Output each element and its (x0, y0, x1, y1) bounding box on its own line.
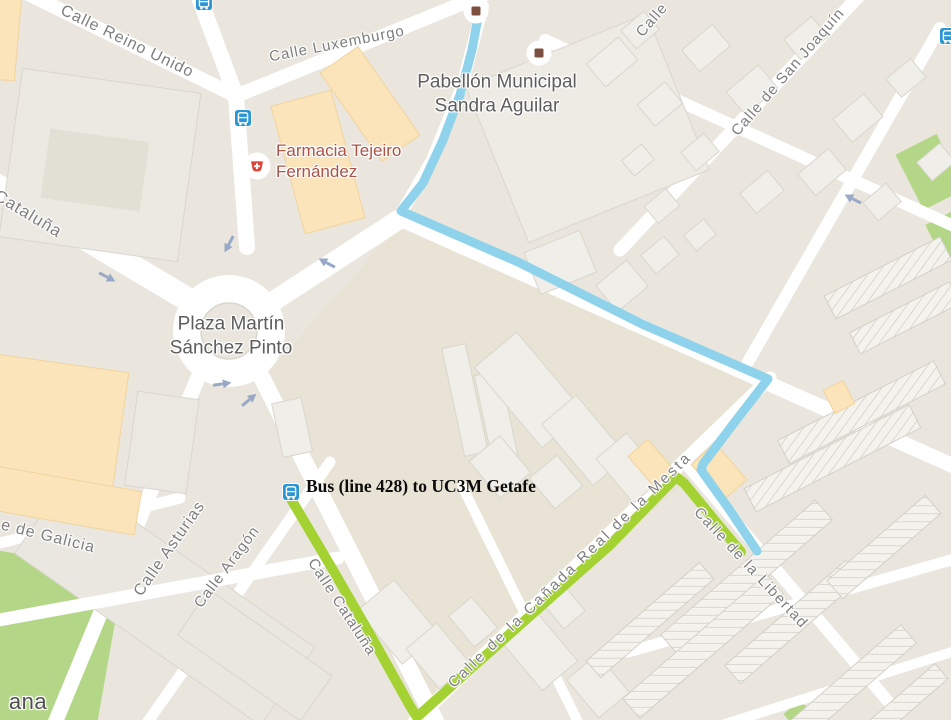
poi-label-pabellon: Pabellón Municipal Sandra Aguilar (417, 70, 577, 118)
poi-label-farmacia: Farmacia Tejeiro Fernández (276, 140, 401, 183)
poi-label-pabellon-line1: Pabellón Municipal (417, 70, 577, 94)
poi-square-marker[interactable] (464, 0, 552, 66)
map-canvas[interactable]: Calle Reino Unido Calle Luxemburgo Catal… (0, 0, 951, 720)
poi-label-plaza-line1: Plaza Martín (170, 312, 293, 336)
locality-label-partial: ana (9, 689, 47, 715)
poi-label-farmacia-line2: Fernández (276, 161, 401, 182)
map-annotation-bus-note: Bus (line 428) to UC3M Getafe (306, 476, 536, 497)
poi-label-plaza: Plaza Martín Sánchez Pinto (170, 312, 293, 360)
poi-label-pabellon-line2: Sandra Aguilar (417, 94, 577, 118)
poi-label-plaza-line2: Sánchez Pinto (170, 336, 293, 360)
pharmacy-icon[interactable] (244, 153, 271, 180)
poi-label-farmacia-line1: Farmacia Tejeiro (276, 140, 401, 161)
